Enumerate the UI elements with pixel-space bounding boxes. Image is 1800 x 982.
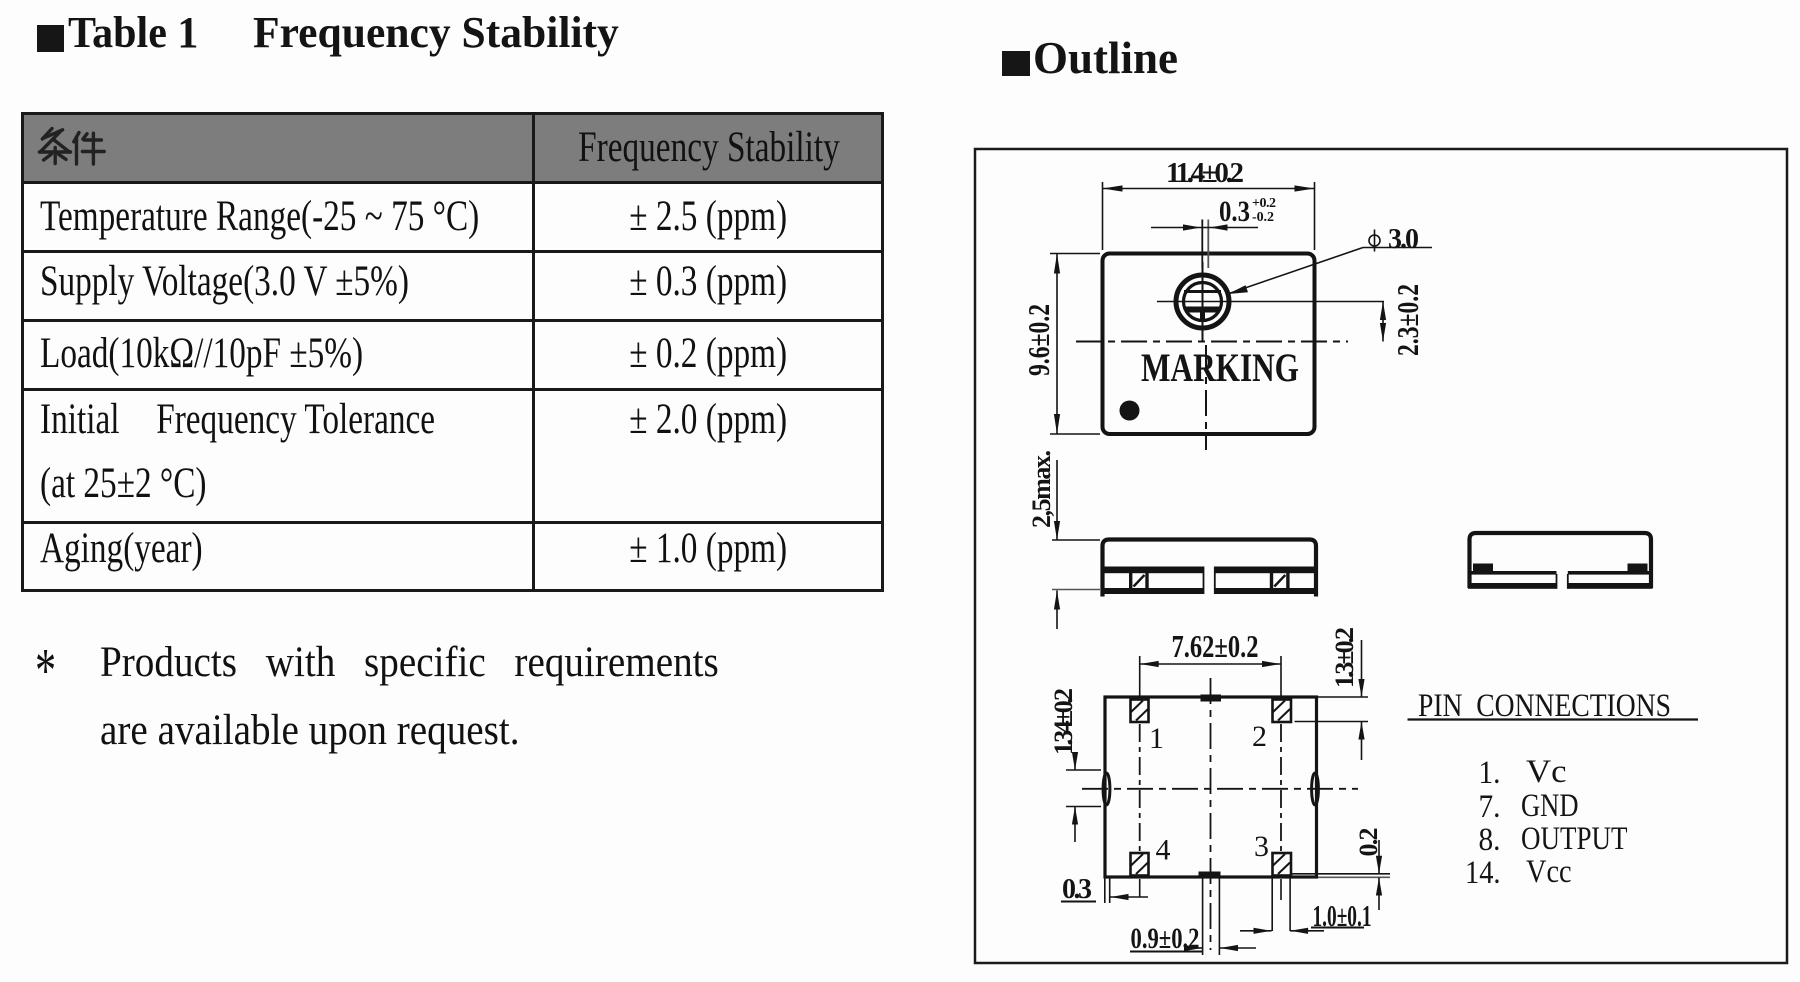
svg-text:7.62±0.2: 7.62±0.2 (1172, 628, 1259, 664)
svg-text:8.: 8. (1479, 822, 1501, 858)
svg-text:Vc: Vc (1526, 754, 1567, 790)
svg-text:2.3±0.2: 2.3±0.2 (1390, 284, 1425, 356)
svg-text:1: 1 (1149, 722, 1164, 755)
svg-text:11.4±0.2: 11.4±0.2 (1166, 157, 1244, 189)
svg-text:3.0: 3.0 (1388, 224, 1419, 255)
svg-text:Vcc: Vcc (1526, 854, 1572, 890)
svg-text:0.9±0.2: 0.9±0.2 (1131, 922, 1200, 955)
svg-text:+0.2: +0.2 (1252, 196, 1276, 211)
svg-text:2,5max.: 2,5max. (1027, 450, 1056, 528)
svg-text:GND: GND (1521, 788, 1579, 824)
svg-text:0.3: 0.3 (1062, 874, 1092, 905)
svg-text:3: 3 (1254, 830, 1269, 863)
svg-text:4: 4 (1156, 834, 1171, 867)
svg-text:1.: 1. (1479, 755, 1501, 791)
svg-text:0.3: 0.3 (1219, 195, 1250, 228)
svg-text:1.34±0.2: 1.34±0.2 (1049, 688, 1078, 755)
svg-text:-0.2: -0.2 (1252, 210, 1274, 225)
svg-text:9.6±0.2: 9.6±0.2 (1021, 304, 1056, 376)
svg-text:MARKING: MARKING (1141, 345, 1299, 390)
svg-text:0.2: 0.2 (1354, 828, 1383, 857)
svg-text:14.: 14. (1465, 855, 1501, 891)
svg-text:2: 2 (1252, 720, 1267, 753)
svg-text:1.3±0.2: 1.3±0.2 (1330, 627, 1359, 688)
svg-text:OUTPUT: OUTPUT (1521, 821, 1628, 857)
svg-text:7.: 7. (1479, 789, 1501, 825)
